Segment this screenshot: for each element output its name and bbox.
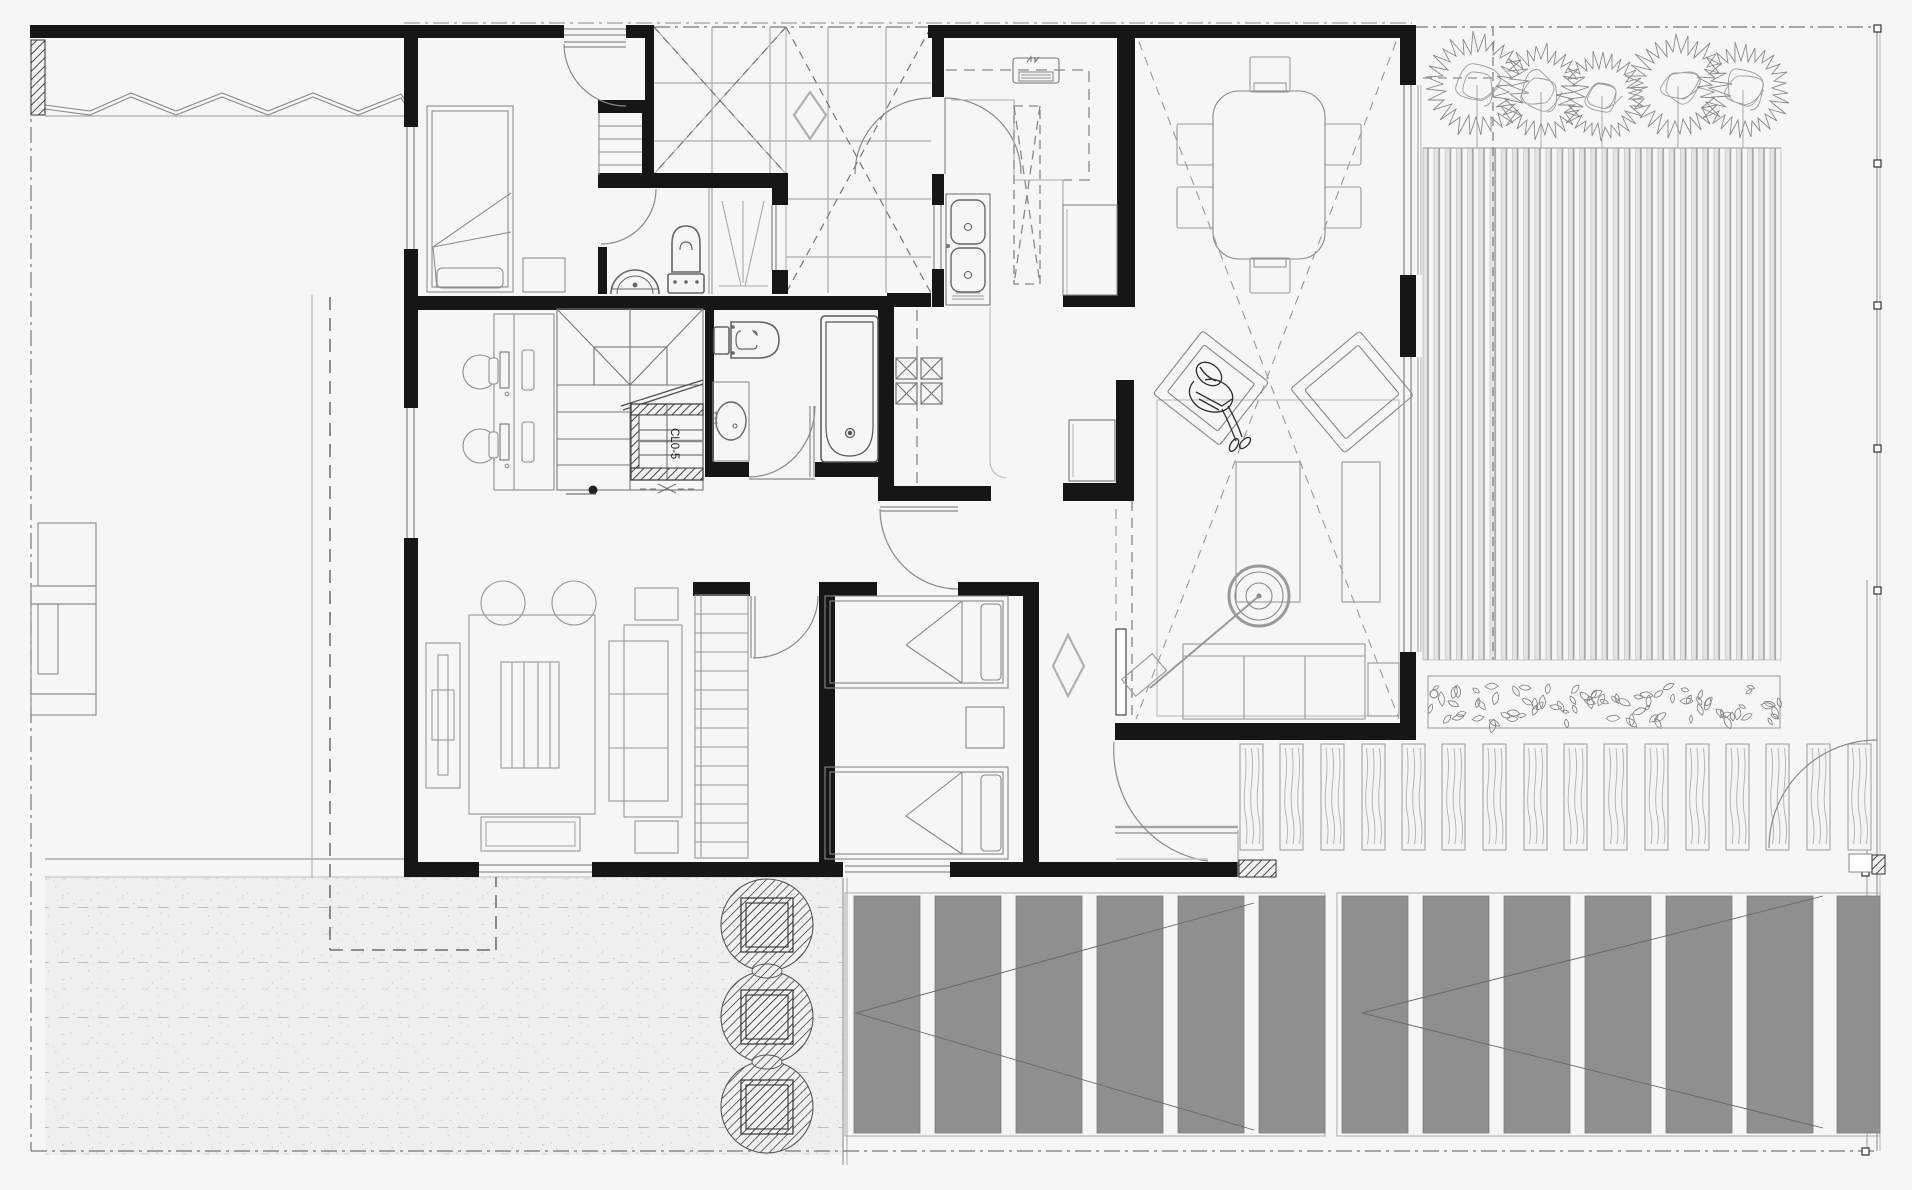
svg-text:CL0-5: CL0-5 — [668, 428, 680, 459]
